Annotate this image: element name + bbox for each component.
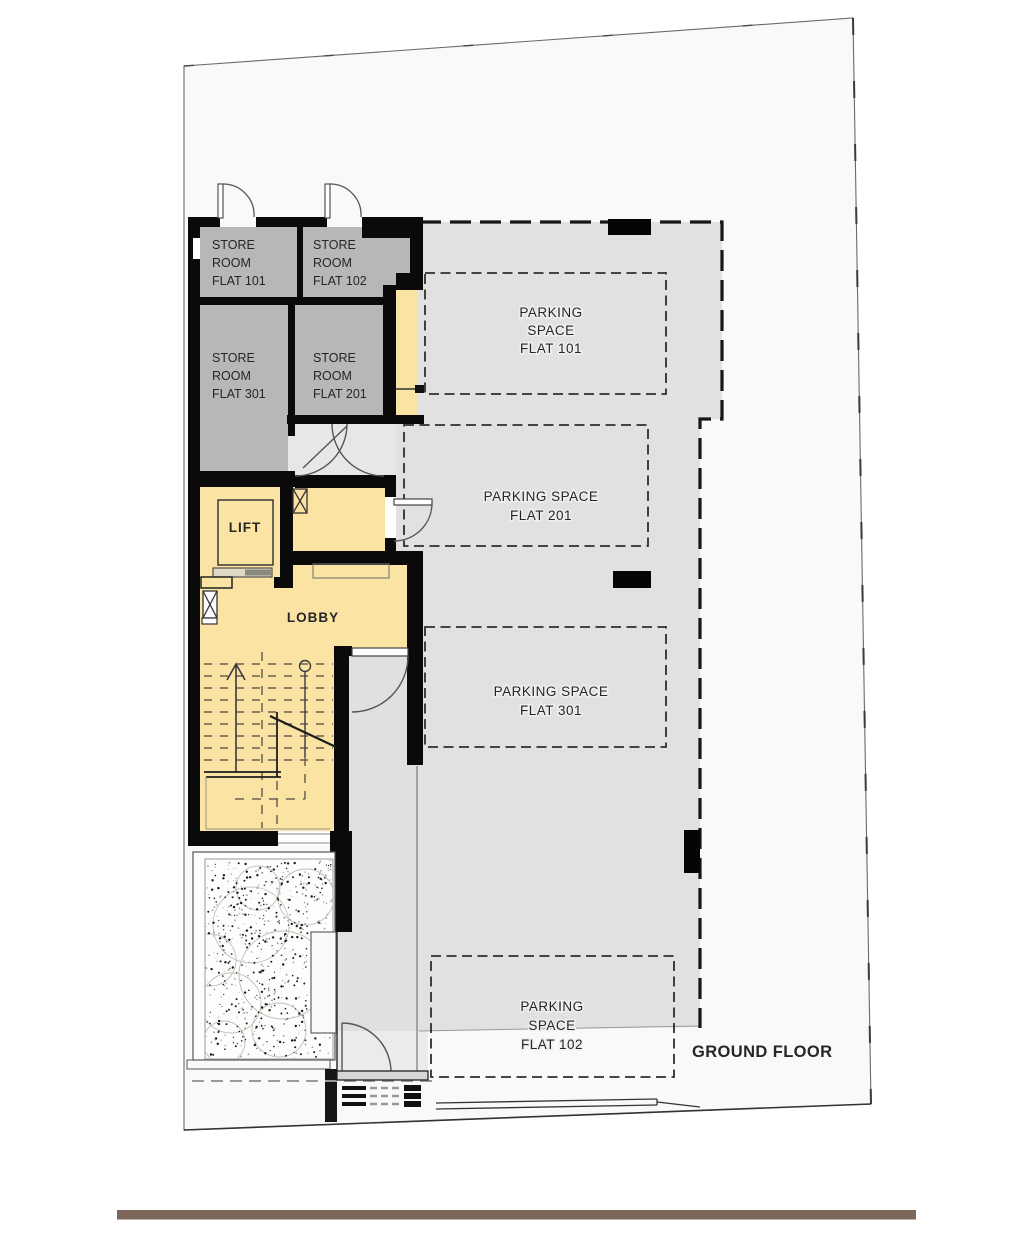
svg-text:FLAT 201: FLAT 201: [313, 387, 367, 401]
svg-text:SPACE: SPACE: [527, 323, 574, 338]
svg-text:ROOM: ROOM: [212, 256, 251, 270]
svg-text:ROOM: ROOM: [313, 256, 352, 270]
svg-text:LIFT: LIFT: [229, 520, 262, 535]
svg-text:PARKING: PARKING: [520, 999, 583, 1014]
svg-text:STORE: STORE: [212, 238, 255, 252]
svg-text:GROUND FLOOR: GROUND FLOOR: [692, 1043, 832, 1061]
svg-text:FLAT 301: FLAT 301: [520, 703, 582, 718]
svg-text:STORE: STORE: [313, 238, 356, 252]
svg-text:FLAT 301: FLAT 301: [212, 387, 266, 401]
svg-text:STORE: STORE: [212, 351, 255, 365]
svg-text:FLAT 102: FLAT 102: [521, 1037, 583, 1052]
svg-text:ROOM: ROOM: [212, 369, 251, 383]
svg-text:LOBBY: LOBBY: [287, 610, 339, 625]
svg-text:FLAT 101: FLAT 101: [520, 341, 582, 356]
svg-text:FLAT 101: FLAT 101: [212, 274, 266, 288]
svg-text:STORE: STORE: [313, 351, 356, 365]
svg-text:ROOM: ROOM: [313, 369, 352, 383]
svg-text:SPACE: SPACE: [528, 1018, 575, 1033]
svg-text:FLAT 102: FLAT 102: [313, 274, 367, 288]
svg-text:PARKING SPACE: PARKING SPACE: [484, 489, 599, 504]
svg-text:PARKING: PARKING: [519, 305, 582, 320]
svg-text:FLAT 201: FLAT 201: [510, 508, 572, 523]
svg-text:PARKING SPACE: PARKING SPACE: [494, 684, 609, 699]
